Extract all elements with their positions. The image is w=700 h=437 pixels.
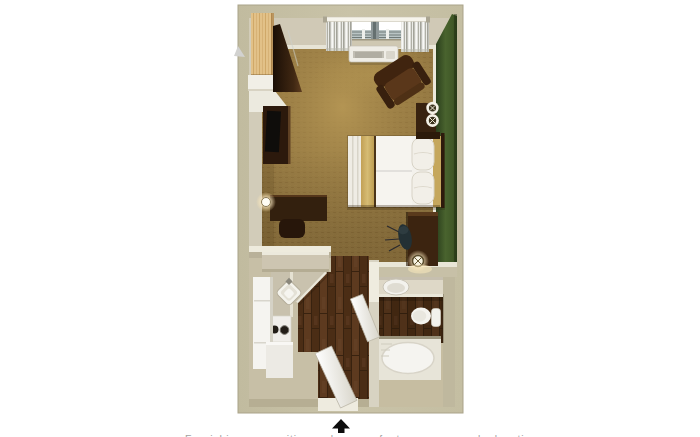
svg-text:Furnishings, amenities and squ: Furnishings, amenities and square footag… <box>185 433 541 437</box>
